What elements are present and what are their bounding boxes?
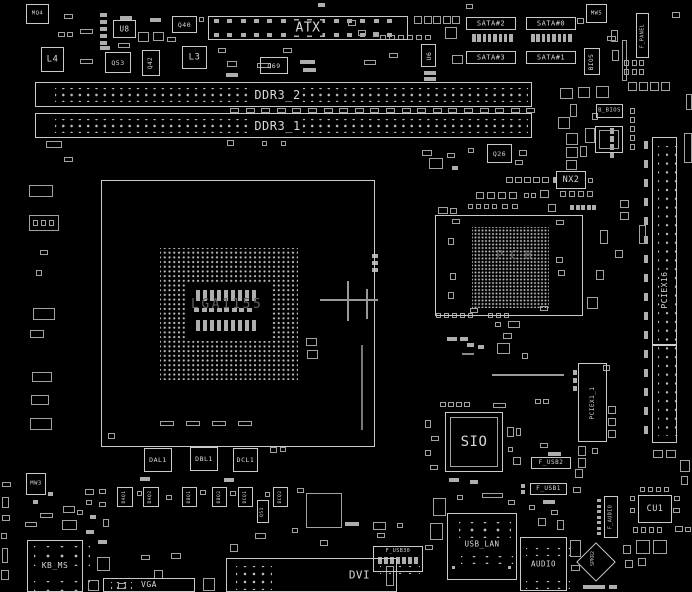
l4-inductor[interactable]: L4 — [41, 47, 64, 72]
bios-chip-label: BIOS — [589, 53, 595, 69]
pin-pad — [492, 204, 497, 209]
pin-pad — [644, 426, 648, 434]
mq4-chip[interactable]: MQ4 — [26, 4, 49, 24]
slot-key-notch — [653, 344, 676, 346]
passive-part — [424, 71, 436, 75]
passive-part — [450, 208, 457, 214]
passive-part — [608, 418, 616, 426]
passive-part — [440, 402, 446, 407]
cpu-socket[interactable] — [101, 180, 375, 447]
passive-part — [538, 518, 546, 526]
passive-part — [685, 527, 691, 532]
dcq2-mosfet[interactable]: DCQ2 — [273, 487, 288, 507]
atx-power-connector-label: ATX — [294, 21, 323, 36]
passive-part — [98, 540, 107, 544]
nx2-chip[interactable]: NX2 — [556, 171, 586, 189]
passive-part — [48, 492, 53, 496]
ddr3-2-slot[interactable]: DDR3_2 — [35, 82, 532, 107]
passive-part — [397, 523, 403, 528]
passive-part — [90, 515, 96, 519]
pin-pad — [644, 160, 648, 168]
passive-part — [430, 523, 443, 540]
pin-pad — [597, 516, 601, 519]
usb-lan-connector[interactable]: USB_LAN — [447, 513, 517, 580]
bios-chip[interactable]: BIOS — [584, 48, 600, 75]
passive-part — [46, 141, 62, 148]
pin-pad — [509, 192, 517, 199]
pin-pad — [499, 34, 503, 42]
passive-part — [99, 489, 106, 494]
passive-part — [103, 519, 109, 527]
passive-part — [255, 533, 266, 539]
dbq1-mosfet[interactable]: DBQ1 — [182, 487, 197, 507]
silkscreen-text: SPKR2 — [591, 551, 596, 566]
u6-chip[interactable]: U6 — [421, 44, 436, 67]
pin-pad — [512, 204, 518, 209]
passive-part — [32, 372, 52, 382]
passive-part — [681, 476, 688, 485]
passive-part — [466, 4, 473, 9]
q26-mosfet-label: Q26 — [493, 150, 506, 157]
passive-part — [424, 77, 436, 81]
passive-part — [588, 178, 593, 183]
passive-part — [303, 68, 316, 72]
cu1-chip[interactable]: CU1 — [638, 495, 672, 523]
daq2-mosfet-label: DAQ2 — [149, 491, 154, 504]
mw5-chip[interactable]: MW5 — [586, 4, 607, 23]
passive-part — [292, 528, 298, 533]
passive-part — [580, 146, 587, 157]
dbl1-choke-label: DBL1 — [195, 456, 213, 463]
passive-part — [497, 343, 510, 354]
pin-pad — [581, 205, 585, 210]
dal1-choke[interactable]: DAL1 — [144, 448, 172, 472]
passive-part — [612, 50, 619, 61]
passive-part — [138, 32, 149, 42]
pin-pad — [649, 527, 654, 533]
ddr3-1-slot[interactable]: DDR3_1 — [35, 113, 532, 138]
pin-pad — [641, 527, 646, 533]
passive-part — [80, 29, 93, 34]
f-usb1-header[interactable]: F_USB1 — [530, 483, 567, 495]
crosshair-cursor[interactable] — [320, 299, 378, 301]
passive-part — [118, 43, 130, 48]
pin-pad — [639, 69, 644, 75]
passive-part — [639, 225, 646, 244]
pin-pad — [597, 499, 601, 502]
passive-part — [566, 160, 577, 170]
q51-mosfet[interactable]: Q51 — [257, 500, 269, 523]
pin-pad — [639, 60, 644, 66]
passive-part — [218, 48, 226, 53]
dbq2-mosfet[interactable]: DBQ2 — [212, 487, 227, 507]
pin-pad — [630, 144, 635, 150]
passive-part — [596, 86, 609, 98]
passive-part — [153, 32, 164, 41]
sata1-connector[interactable]: SATA#1 — [526, 51, 576, 64]
passive-part — [230, 491, 236, 496]
pin-pad — [644, 255, 648, 263]
passive-part — [345, 522, 359, 526]
passive-part — [543, 500, 555, 504]
passive-part — [425, 450, 431, 456]
trace-line — [361, 345, 363, 430]
f-panel-header-label: F_PANEL — [640, 23, 645, 48]
passive-part — [516, 428, 521, 436]
vga-connector[interactable]: VGA — [103, 578, 195, 592]
passive-part — [373, 522, 386, 530]
f-audio-header[interactable]: F_AUDIO — [604, 496, 618, 538]
passive-part — [318, 3, 325, 7]
pin-pad — [576, 205, 580, 210]
passive-part — [99, 502, 106, 507]
sata0-connector[interactable]: SATA#0 — [526, 17, 576, 30]
f-usb30-header-label: F_USB30 — [386, 549, 411, 554]
passive-part — [199, 17, 204, 22]
passive-part — [515, 160, 523, 165]
q40-mosfet-label: Q40 — [178, 21, 191, 28]
dcl1-choke-label: DCL1 — [237, 457, 255, 464]
passive-part — [29, 185, 53, 197]
passive-part — [608, 406, 616, 414]
passive-part — [482, 493, 503, 498]
pin-pad — [592, 205, 596, 210]
passive-part — [672, 12, 680, 18]
pin-pad — [644, 293, 648, 301]
passive-part — [508, 321, 520, 328]
f-panel-header[interactable]: F_PANEL — [636, 13, 649, 58]
pin-pad — [547, 34, 551, 42]
passive-part — [452, 55, 463, 64]
passive-part — [570, 104, 577, 117]
pin-pad — [487, 192, 495, 199]
pin-pad — [524, 193, 529, 198]
passive-part — [571, 565, 580, 571]
passive-part — [100, 46, 110, 50]
passive-part — [686, 94, 692, 110]
trace-line — [462, 353, 474, 355]
pin-pad — [644, 369, 648, 377]
l4-inductor-label: L4 — [47, 55, 59, 64]
dcl1-choke[interactable]: DCL1 — [233, 448, 258, 472]
pin-pad — [644, 217, 648, 225]
pin-pad — [533, 177, 540, 183]
passive-part — [438, 207, 448, 214]
pin-pad — [587, 205, 591, 210]
pin-pad — [476, 204, 481, 209]
pin-pad — [472, 34, 476, 42]
passive-part — [167, 37, 176, 42]
passive-part — [100, 41, 107, 45]
passive-part — [650, 82, 659, 91]
b-bios-chip-label: B_BIOS — [598, 108, 621, 114]
pin-pad — [644, 350, 648, 358]
passive-part — [470, 480, 478, 484]
passive-part — [447, 337, 457, 341]
passive-part — [573, 370, 577, 375]
q51-mosfet-label: Q51 — [261, 507, 266, 517]
pciex16-slot-label: PCIEX16 — [660, 269, 670, 310]
passive-part — [2, 548, 8, 563]
pin-pad — [425, 35, 431, 40]
pin-pad — [568, 34, 572, 42]
daq1-mosfet-label: DAQ1 — [123, 491, 128, 504]
daq1-mosfet[interactable]: DAQ1 — [117, 487, 133, 507]
passive-part — [611, 30, 618, 42]
sata3-connector-label: SATA#3 — [477, 54, 505, 61]
passive-part — [448, 402, 454, 407]
passive-part — [540, 443, 548, 448]
f-usb30-header[interactable]: F_USB30 — [373, 546, 423, 572]
passive-part — [540, 190, 549, 198]
mw5-chip-label: MW5 — [591, 11, 602, 17]
b-bios-chip[interactable]: B_BIOS — [596, 104, 623, 118]
passive-part — [529, 505, 535, 510]
passive-part — [226, 73, 238, 77]
pin-pad — [597, 532, 601, 535]
sata2-connector[interactable]: SATA#2 — [466, 17, 516, 30]
passive-part — [447, 153, 455, 158]
passive-part — [31, 395, 49, 405]
pin-pad — [630, 108, 635, 114]
passive-part — [456, 402, 462, 407]
q26-mosfet[interactable]: Q26 — [487, 144, 512, 163]
kb-ms-connector[interactable]: KB_MS — [27, 540, 83, 592]
passive-part — [495, 322, 501, 327]
passive-part — [80, 59, 93, 64]
kb-ms-connector-label: KB_MS — [40, 561, 71, 571]
passive-part — [675, 526, 683, 532]
dvi-connector-label: DVI — [347, 569, 372, 582]
pin-pad — [468, 204, 473, 209]
passive-part — [639, 82, 648, 91]
passive-part — [521, 484, 525, 488]
passive-part — [25, 522, 37, 527]
passive-part — [227, 61, 237, 67]
sio-chip-label: SIO — [461, 435, 488, 449]
passive-part — [620, 212, 629, 220]
pin-pad — [424, 16, 432, 24]
pin-pad — [542, 34, 546, 42]
pin-pad — [476, 192, 484, 199]
passive-part — [622, 40, 627, 81]
pin-pad — [552, 34, 556, 42]
atx-power-connector[interactable]: ATX — [208, 16, 408, 40]
pin-pad — [570, 205, 574, 210]
mw3-chip[interactable]: MW3 — [26, 473, 46, 495]
passive-part — [67, 32, 73, 37]
passive-part — [171, 553, 181, 559]
passive-part — [508, 500, 515, 505]
passive-part — [628, 82, 637, 91]
passive-part — [36, 270, 42, 276]
pin-pad — [506, 177, 513, 183]
passive-part — [280, 447, 286, 452]
pin-pad — [536, 34, 540, 42]
passive-part — [508, 447, 513, 452]
passive-part — [33, 500, 38, 504]
sata0-connector-label: SATA#0 — [537, 20, 565, 27]
audio-connector[interactable]: AUDIO — [520, 537, 567, 591]
passive-part — [615, 250, 623, 258]
dal1-choke-label: DAL1 — [149, 457, 167, 464]
passive-part — [100, 27, 107, 31]
passive-part — [430, 465, 438, 470]
pin-pad — [502, 204, 508, 209]
pin-pad — [542, 177, 549, 183]
passive-part — [653, 450, 663, 458]
passive-part — [452, 166, 458, 170]
board-canvas[interactable]: MQ4L4U8Q53Q42Q40L3Q69ATXSATA#2SATA#0SATA… — [0, 0, 692, 592]
f-usb1-header-label: F_USB1 — [536, 486, 561, 492]
passive-part — [2, 482, 11, 487]
passive-part — [585, 128, 595, 143]
pin-pad — [504, 34, 508, 42]
passive-part — [30, 418, 52, 430]
passive-part — [623, 545, 631, 554]
pin-pad — [443, 16, 451, 24]
pin-pad — [597, 527, 601, 530]
pin-pad — [587, 191, 593, 197]
pin-pad — [515, 177, 522, 183]
passive-part — [519, 150, 527, 156]
ddr3-2-slot-label: DDR3_2 — [252, 88, 302, 102]
passive-part — [306, 493, 342, 528]
passive-part — [583, 585, 605, 589]
passive-part — [64, 14, 73, 19]
dbl1-choke[interactable]: DBL1 — [190, 447, 218, 471]
crosshair-cursor[interactable] — [347, 281, 349, 321]
passive-part — [522, 353, 528, 359]
passive-part — [673, 508, 680, 513]
pin-pad — [509, 34, 513, 42]
pin-pad — [633, 527, 638, 533]
u8-chip-label: U8 — [119, 25, 129, 33]
sata3-connector[interactable]: SATA#3 — [466, 51, 516, 64]
q42-mosfet-label: Q42 — [148, 57, 154, 69]
passive-part — [88, 580, 99, 591]
passive-part — [653, 540, 667, 554]
passive-part — [620, 200, 629, 208]
passive-part — [445, 27, 457, 39]
passive-part — [100, 34, 107, 38]
pin-pad — [630, 126, 635, 132]
passive-part — [503, 333, 512, 339]
passive-part — [30, 330, 44, 338]
pin-pad — [452, 16, 460, 24]
passive-part — [570, 540, 581, 557]
passive-part — [270, 447, 277, 453]
passive-part — [40, 513, 53, 518]
passive-part — [566, 147, 578, 158]
passive-part — [281, 141, 286, 146]
pin-pad — [644, 388, 648, 396]
pciex16-slot[interactable]: PCIEX16 — [652, 137, 677, 443]
passive-part — [630, 508, 635, 513]
pin-pad — [644, 179, 648, 187]
vga-connector-label: VGA — [139, 580, 159, 590]
sio-chip[interactable]: SIO — [445, 412, 503, 472]
passive-part — [573, 378, 577, 383]
passive-part — [137, 491, 142, 496]
l3-inductor[interactable]: L3 — [182, 46, 207, 69]
pin-pad — [488, 34, 492, 42]
pin-pad — [630, 135, 635, 141]
pin-pad — [657, 527, 662, 533]
passive-part — [609, 585, 617, 589]
passive-part — [377, 533, 385, 538]
pin-pad — [477, 34, 481, 42]
q53-mosfet[interactable]: Q53 — [105, 52, 131, 73]
passive-part — [468, 148, 474, 153]
pin-pad — [558, 34, 562, 42]
trace-line — [492, 374, 564, 376]
passive-part — [548, 452, 561, 456]
passive-part — [297, 488, 304, 493]
q40-mosfet[interactable]: Q40 — [172, 16, 197, 33]
pin-pad — [644, 407, 648, 415]
passive-part — [29, 215, 59, 231]
dcq1-mosfet[interactable]: DCQ1 — [238, 487, 253, 507]
cu1-chip-label: CU1 — [647, 505, 664, 514]
pciex1-slot[interactable]: PCIEX1_1 — [578, 363, 607, 442]
u8-chip[interactable]: U8 — [113, 20, 136, 38]
pch-chipset[interactable] — [435, 215, 583, 316]
passive-part — [636, 540, 650, 554]
f-usb2-header-label: F_USB2 — [539, 460, 564, 466]
q42-mosfet[interactable]: Q42 — [142, 50, 160, 76]
passive-part — [684, 133, 692, 163]
nx2-chip-label: NX2 — [563, 176, 580, 185]
passive-part — [200, 490, 206, 495]
pin-pad — [656, 487, 661, 492]
passive-part — [535, 399, 541, 404]
dvi-connector[interactable]: DVI — [226, 558, 397, 592]
qfn-chip[interactable] — [595, 126, 623, 153]
passive-part — [40, 250, 48, 255]
passive-part — [2, 497, 9, 508]
passive-part — [1, 533, 7, 539]
q69-mosfet-label: Q69 — [267, 62, 280, 69]
f-usb2-header[interactable]: F_USB2 — [531, 457, 571, 469]
passive-part — [97, 557, 110, 571]
q53-mosfet-label: Q53 — [111, 59, 124, 66]
pin-pad — [644, 331, 648, 339]
passive-part — [100, 20, 107, 24]
pin-pad — [416, 35, 422, 40]
passive-part — [364, 60, 376, 65]
pin-pad — [493, 34, 497, 42]
passive-part — [389, 53, 398, 58]
passive-part — [166, 495, 172, 500]
passive-part — [551, 510, 558, 515]
passive-part — [449, 478, 459, 482]
passive-part — [433, 498, 446, 516]
passive-part — [224, 478, 234, 482]
daq2-mosfet[interactable]: DAQ2 — [143, 487, 159, 507]
passive-part — [283, 48, 292, 53]
passive-part — [578, 87, 590, 98]
passive-part — [1, 570, 9, 580]
crosshair-cursor[interactable] — [366, 289, 368, 319]
pin-pad — [560, 191, 566, 197]
passive-part — [100, 13, 107, 17]
passive-part — [464, 402, 470, 407]
passive-part — [203, 578, 215, 591]
q69-mosfet[interactable]: Q69 — [260, 57, 288, 74]
passive-part — [560, 88, 573, 99]
pin-pad — [644, 312, 648, 320]
